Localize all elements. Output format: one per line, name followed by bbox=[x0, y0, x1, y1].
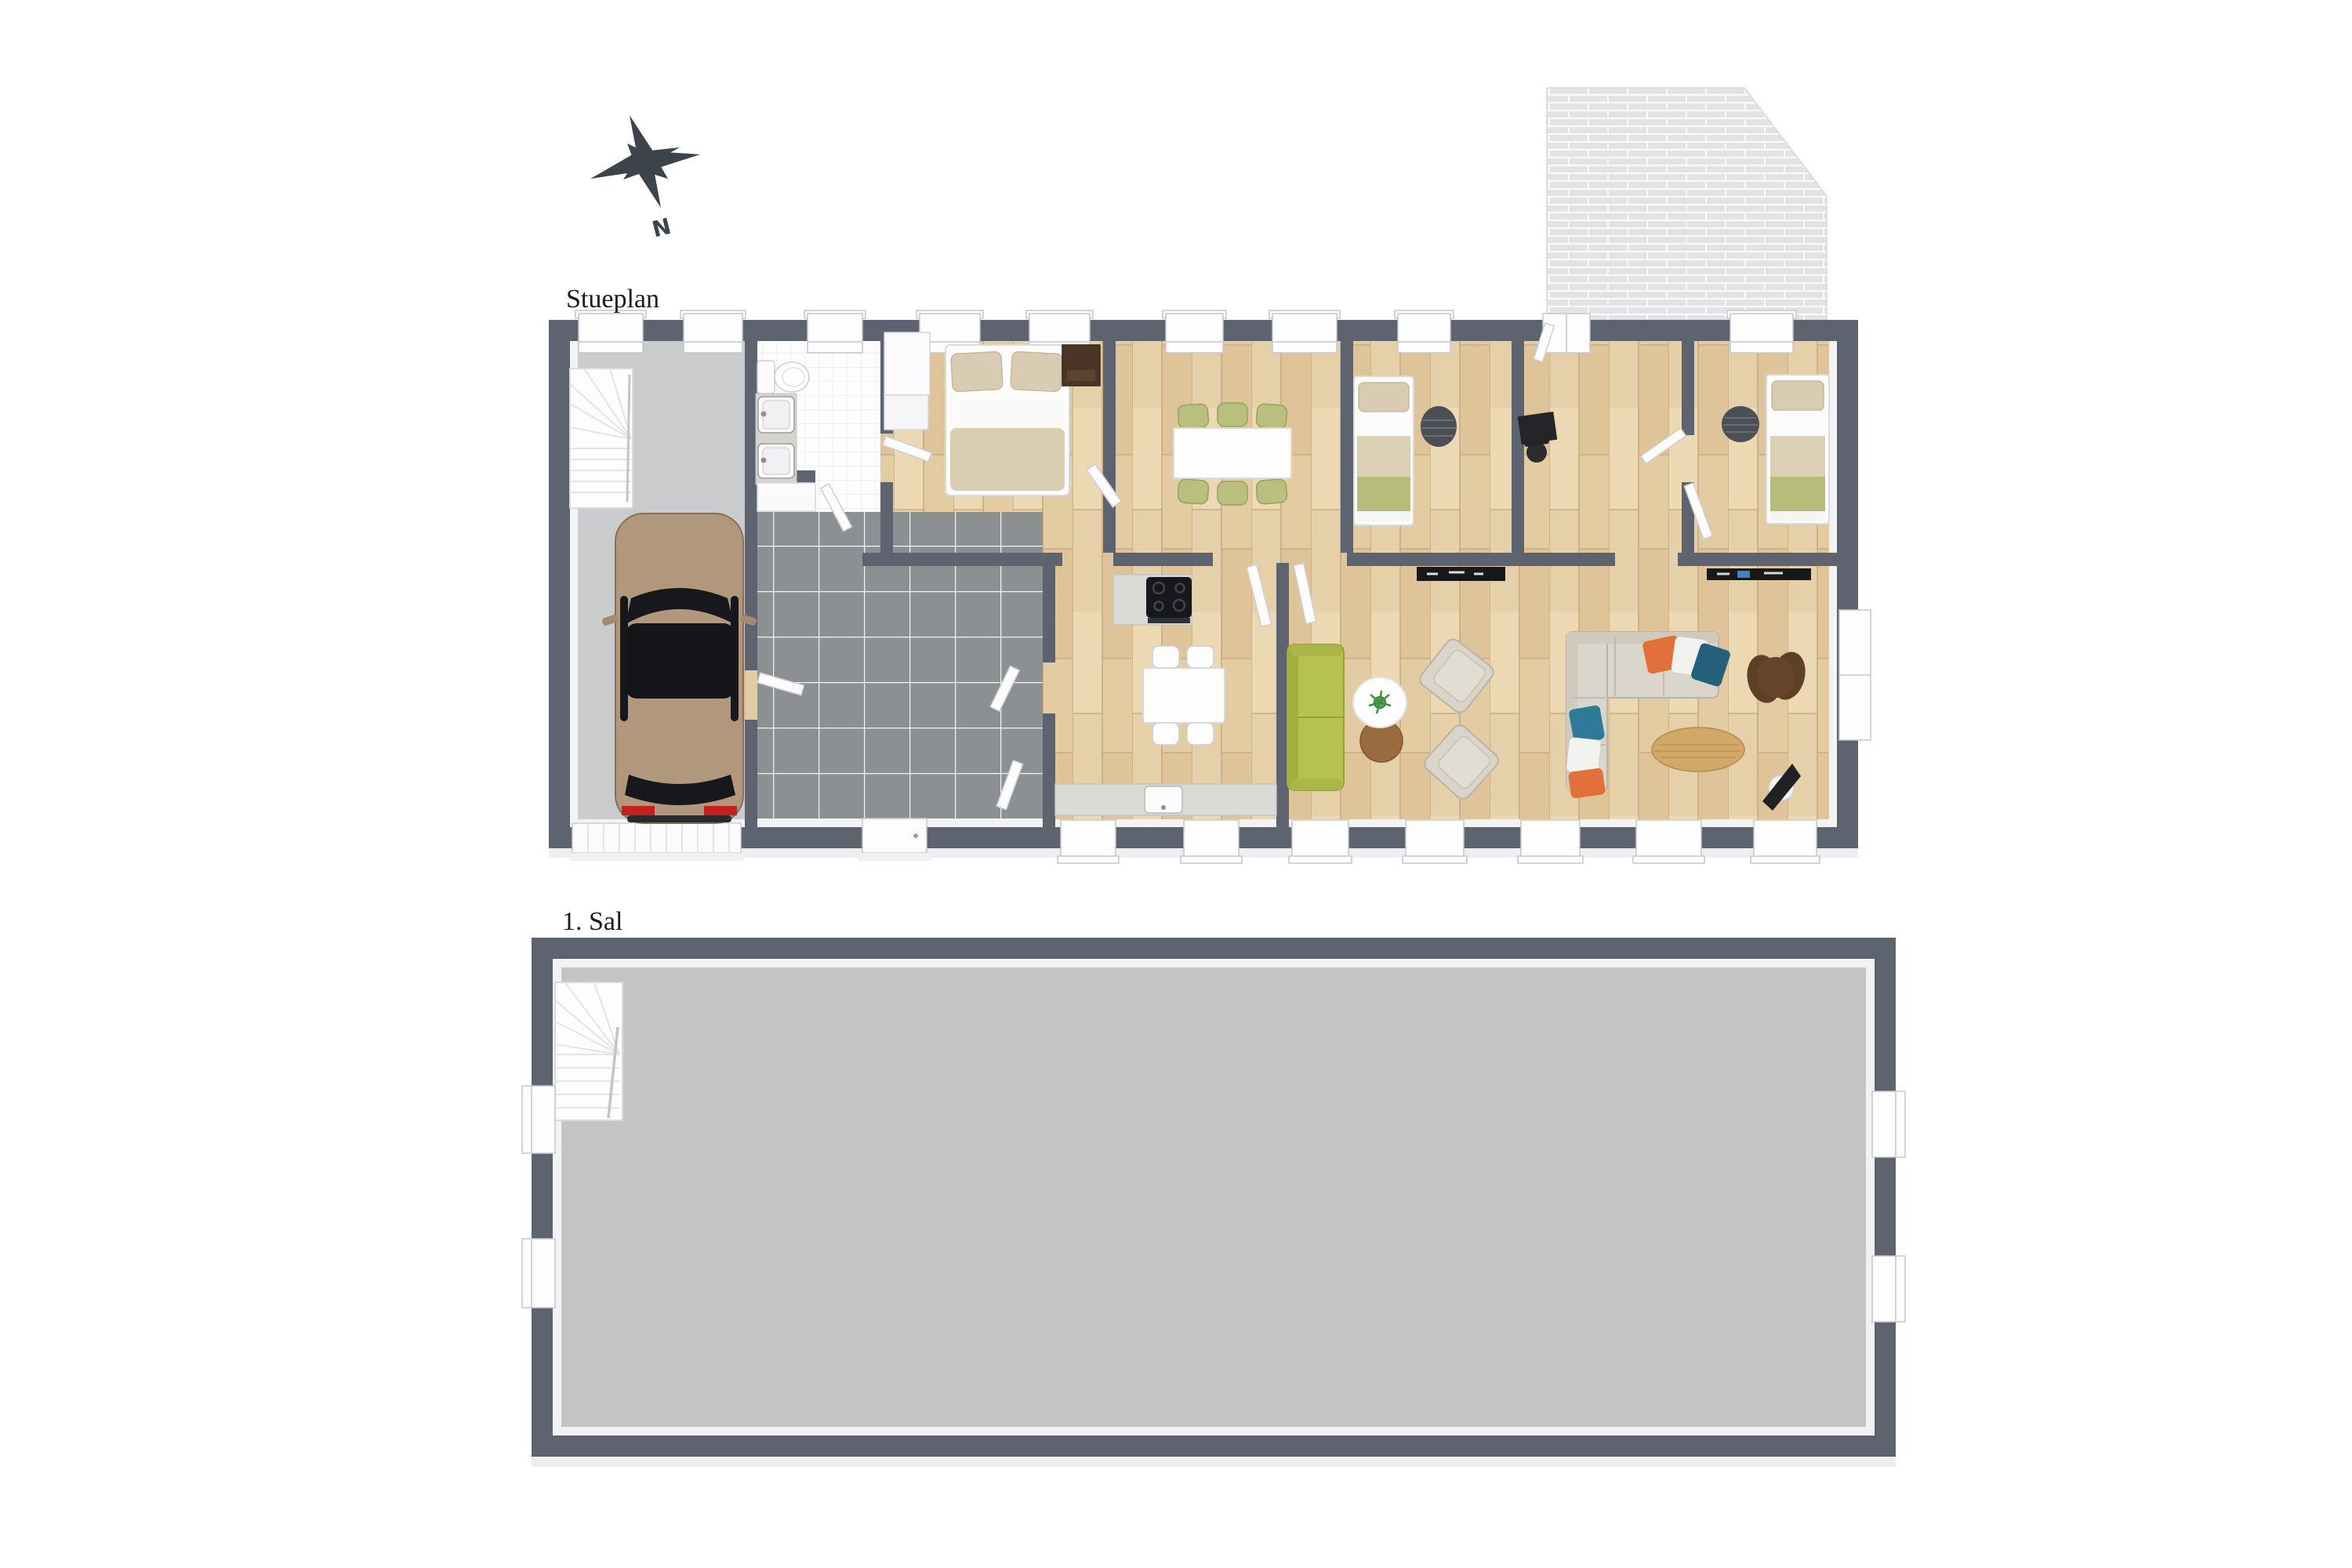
first-floor-plan bbox=[522, 938, 1905, 1467]
bathroom-sink bbox=[758, 397, 794, 433]
window bbox=[1289, 820, 1352, 863]
window bbox=[804, 310, 866, 353]
ground-floor-plan bbox=[549, 88, 1871, 863]
oval-coffee-table bbox=[1652, 728, 1744, 771]
window bbox=[1269, 310, 1340, 353]
ground-floor-label: Stueplan bbox=[566, 285, 659, 314]
stove bbox=[1146, 577, 1192, 623]
first-floor-label: 1. Sal bbox=[562, 907, 622, 936]
floor-plan-drawing: N Stueplan 1. Sal bbox=[0, 0, 2352, 1568]
staircase bbox=[555, 982, 622, 1120]
compass-north-label: N bbox=[649, 213, 673, 243]
window bbox=[522, 1239, 555, 1308]
dining-table bbox=[1174, 428, 1291, 478]
front-door bbox=[858, 818, 931, 861]
kitchen-sink bbox=[1145, 786, 1182, 813]
window bbox=[1633, 820, 1704, 863]
window bbox=[1403, 820, 1467, 863]
window bbox=[575, 310, 646, 353]
kitchen-table bbox=[1143, 668, 1225, 723]
window bbox=[1751, 820, 1820, 863]
car bbox=[601, 514, 757, 823]
window bbox=[1395, 310, 1454, 353]
single-bed bbox=[1766, 375, 1829, 524]
garage-door bbox=[569, 823, 744, 861]
compass-rose-icon: N bbox=[590, 115, 700, 242]
double-bed bbox=[946, 345, 1069, 495]
window bbox=[1181, 820, 1242, 863]
window bbox=[522, 1086, 555, 1153]
hall-cabinet bbox=[757, 483, 815, 511]
patio bbox=[1547, 88, 1827, 320]
bathroom-sink bbox=[758, 444, 794, 478]
pillow bbox=[1568, 768, 1606, 799]
facade-shadow bbox=[532, 1457, 1896, 1467]
window bbox=[1872, 1256, 1905, 1322]
dining-room-furniture bbox=[1174, 403, 1291, 505]
terrace-door bbox=[1839, 610, 1871, 740]
first-floor-room bbox=[561, 967, 1866, 1427]
toilet bbox=[757, 361, 809, 394]
staircase bbox=[570, 368, 633, 508]
window bbox=[1727, 310, 1796, 353]
single-bed bbox=[1354, 376, 1414, 525]
window bbox=[1872, 1091, 1905, 1157]
window bbox=[1518, 820, 1583, 863]
wardrobe bbox=[884, 332, 930, 395]
dresser-top bbox=[1067, 370, 1095, 381]
floor-plan-canvas: N Stueplan 1. Sal bbox=[0, 0, 2352, 1568]
window bbox=[1058, 820, 1119, 863]
wardrobe bbox=[884, 395, 928, 430]
sofa bbox=[1287, 644, 1344, 790]
window bbox=[681, 310, 746, 353]
window bbox=[1163, 310, 1226, 353]
rug bbox=[1421, 406, 1457, 447]
